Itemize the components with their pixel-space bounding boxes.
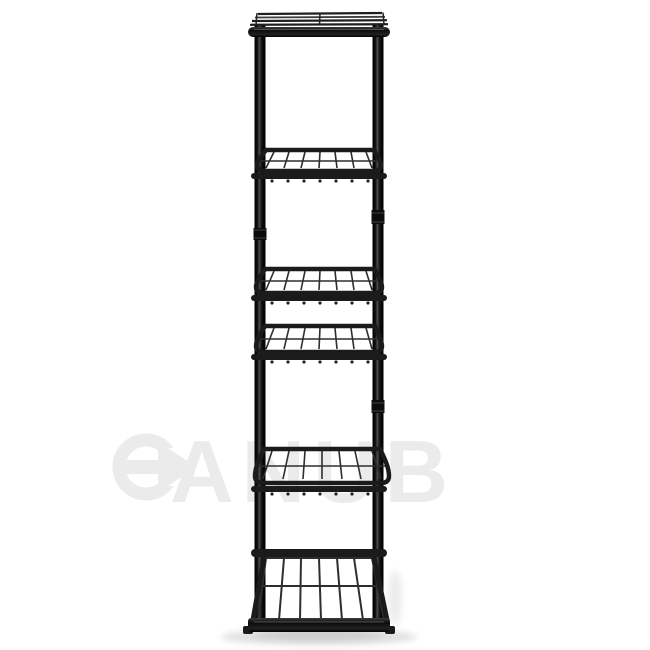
post-joint-right-lower bbox=[372, 400, 385, 413]
post-joint-right-upper bbox=[372, 210, 385, 224]
top-shelf bbox=[248, 13, 390, 38]
shelf-tier-2 bbox=[251, 150, 387, 183]
shelf-grid bbox=[261, 152, 377, 168]
plant-stand-image: ANUB bbox=[0, 0, 650, 650]
side-shadow bbox=[388, 570, 402, 626]
wire-ends bbox=[270, 360, 369, 363]
post-joint-left bbox=[254, 228, 267, 240]
base-front-bar bbox=[248, 618, 390, 632]
logo-arrow-shaft bbox=[116, 460, 162, 474]
crossbar bbox=[251, 295, 387, 301]
base-back-bar bbox=[251, 549, 387, 557]
shelf-tier-3 bbox=[251, 269, 387, 305]
wire-ends bbox=[270, 179, 369, 182]
product-photo: ANUB bbox=[0, 0, 650, 650]
top-crossbar bbox=[248, 27, 390, 37]
crossbar bbox=[251, 486, 387, 492]
base-grid bbox=[258, 558, 384, 620]
shelf-tier-4 bbox=[251, 326, 387, 364]
crossbar bbox=[251, 354, 387, 360]
crossbar bbox=[251, 173, 387, 179]
wire-ends bbox=[270, 301, 369, 304]
shelf-grid bbox=[260, 271, 378, 290]
base-shelf bbox=[243, 549, 395, 634]
shelf-grid bbox=[260, 328, 378, 349]
watermark: ANUB bbox=[116, 422, 456, 521]
watermark-text: ANUB bbox=[170, 422, 456, 521]
